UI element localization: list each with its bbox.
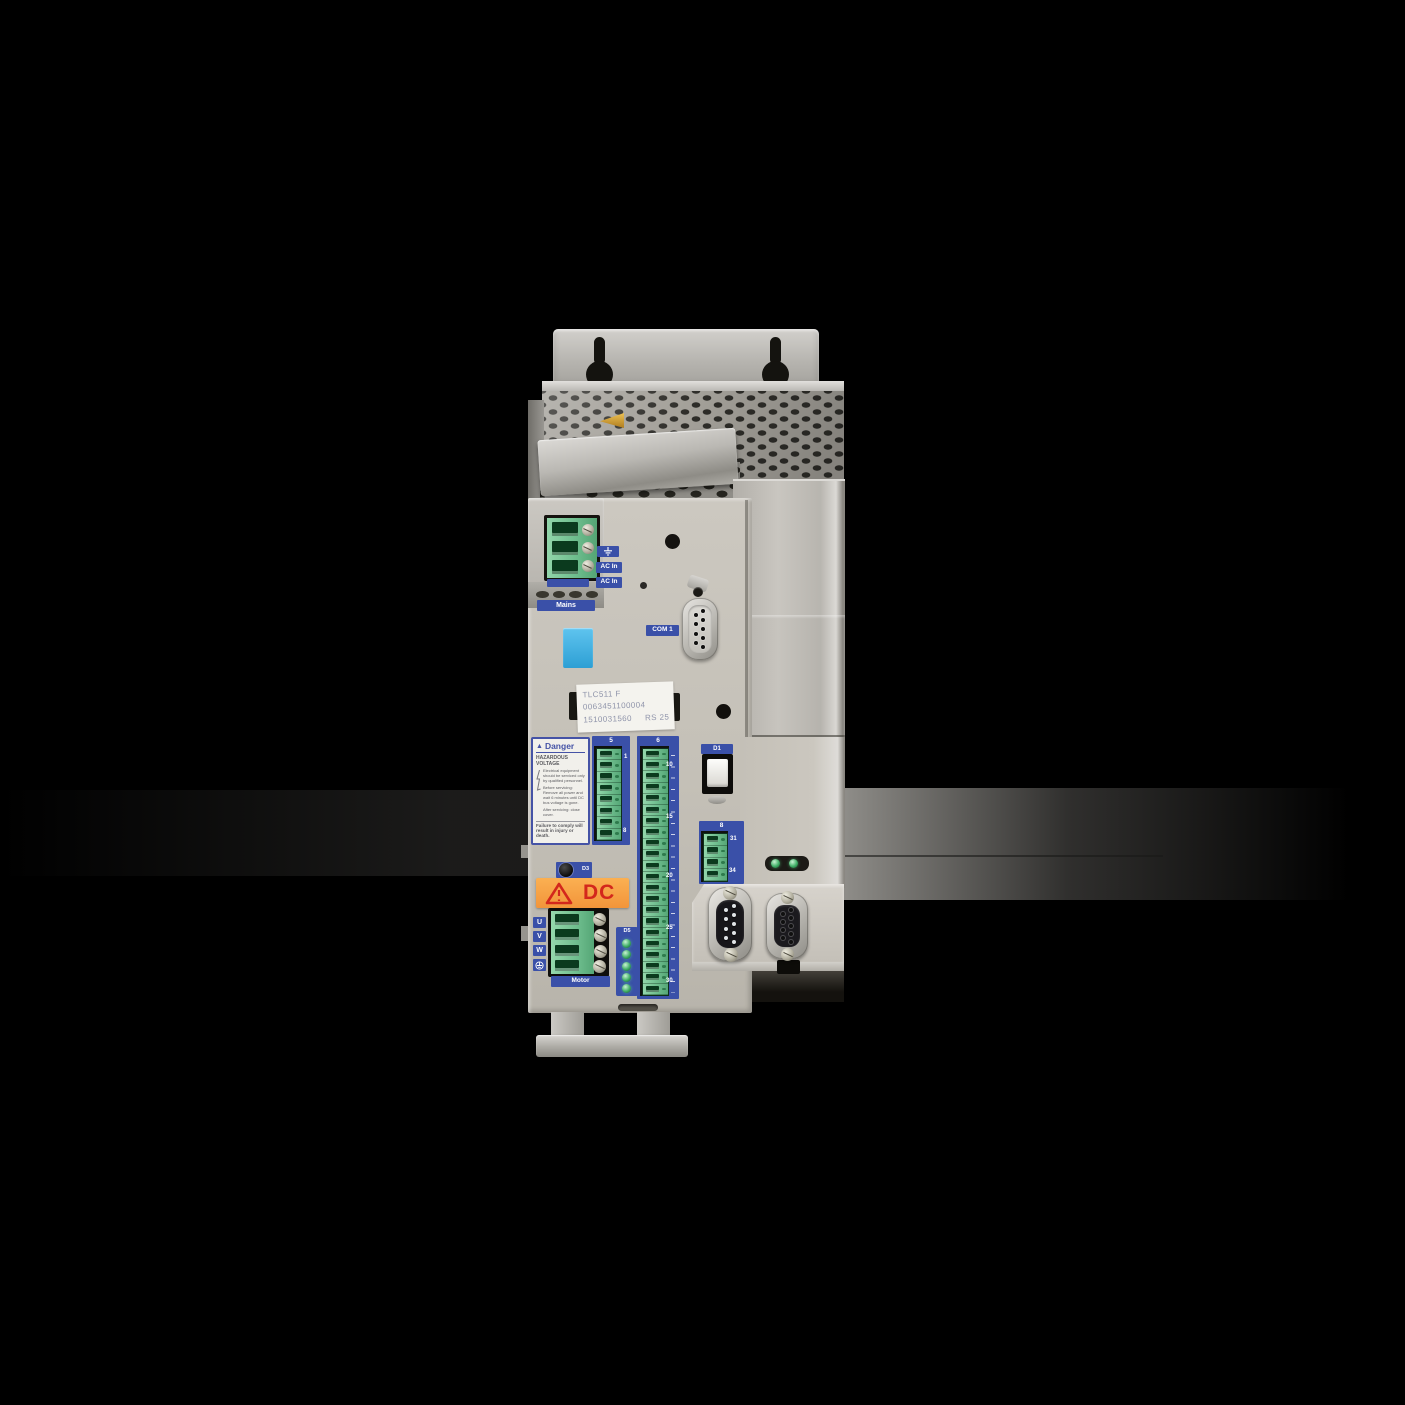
db9-hole (694, 613, 698, 617)
db9-pin (732, 904, 736, 908)
connector-8-header: 8 (720, 823, 724, 830)
db9-hole (694, 641, 698, 645)
db9-hole (694, 622, 698, 626)
connector-6-pins (642, 748, 669, 996)
db9-female-screw-top (781, 891, 794, 904)
vent-slot (553, 591, 566, 598)
product-photo-servo-drive: Mains AC In AC In COM 1 TLC511 (0, 0, 1405, 1405)
db9-male-shell (716, 900, 744, 948)
motor-screw-3 (594, 945, 607, 958)
connector-5-pin8-marker: 8 (623, 828, 626, 834)
connector-5-pins (596, 748, 622, 841)
d1-switch-base (708, 796, 726, 804)
com1-holes-col-a (701, 609, 705, 649)
db9-pin (724, 927, 728, 931)
earth-ground-icon (603, 547, 613, 556)
status-led-slot (765, 856, 809, 871)
db9-hole (701, 645, 705, 649)
db9-female-holes-col-a (789, 908, 793, 944)
db9-female-holes-col-b (781, 912, 785, 940)
db9-female-port (766, 893, 808, 959)
terminal-pin (643, 928, 668, 939)
dc-sticker-text: DC (583, 881, 615, 905)
motor-screw-2 (594, 929, 607, 942)
status-led (789, 859, 798, 868)
ac-in-top-text: AC In (601, 564, 618, 571)
phase-label-w: W (533, 945, 546, 956)
ac-terminal-openings (552, 522, 578, 574)
connector-6-marker-30: 30 (666, 978, 673, 984)
terminal-pin (597, 795, 621, 806)
warning-triangle-icon (545, 882, 573, 905)
terminal-opening (555, 945, 579, 956)
mains-label: Mains (537, 600, 595, 611)
ground-label (597, 546, 619, 557)
com1-label-text: COM 1 (652, 627, 673, 634)
com1-label: COM 1 (646, 625, 679, 636)
danger-body-line: Before servicing: Remove all power and w… (543, 785, 585, 805)
db9-hole (701, 627, 705, 631)
db9-hole (789, 916, 793, 920)
terminal-pin (643, 760, 668, 771)
d5-led (622, 962, 631, 971)
phase-w-text: W (536, 947, 543, 954)
mounting-bracket-bottom (536, 1035, 688, 1057)
terminal-pin (643, 939, 668, 950)
terminal-pin (597, 783, 621, 794)
terminal-pin (643, 894, 668, 905)
db9-hole (789, 940, 793, 944)
ac-in-label-top: AC In (596, 562, 622, 573)
com1-db9-port (682, 598, 718, 660)
terminal-pin (643, 816, 668, 827)
danger-body-line: Electrical equipment should be serviced … (543, 768, 585, 783)
phase-label-u: U (533, 917, 546, 928)
panel-right-seam (745, 500, 748, 737)
terminal-pin (704, 869, 727, 881)
connector-8-pin31-marker: 31 (730, 836, 737, 842)
motor-label: Motor (551, 976, 610, 987)
db9-hole (789, 932, 793, 936)
db9-male-screw-top (723, 886, 737, 900)
terminal-opening (555, 914, 579, 925)
connector-8-pin34-marker: 34 (729, 868, 736, 874)
db9-female-screw-bottom (781, 948, 794, 961)
motor-screw-4 (593, 960, 606, 973)
d1-label: D1 (701, 744, 733, 754)
db9-pin (724, 908, 728, 912)
background-band-left (0, 790, 530, 876)
com1-screw-hole (693, 587, 703, 597)
d5-label-text: D5 (623, 929, 630, 935)
terminal-pin (597, 760, 621, 771)
terminal-opening (552, 541, 578, 555)
panel-hole-mid (716, 704, 731, 719)
terminal-pin (643, 749, 668, 760)
terminal-pin (704, 846, 727, 858)
ac-in-bottom-text: AC In (601, 579, 618, 586)
product-label: TLC511 F 0063451100004 1510031560 RS 25 (576, 681, 675, 732)
db9-male-pins-col-a (732, 904, 736, 944)
earth-ground-icon (535, 961, 544, 970)
terminal-opening (555, 960, 579, 971)
terminal-pin (643, 827, 668, 838)
d5-led (622, 939, 631, 948)
db9-male-pins-col-b (724, 908, 728, 940)
phase-label-ground (533, 959, 546, 971)
db9-hole (789, 924, 793, 928)
d1-label-text: D1 (713, 746, 721, 752)
db9-male-port (708, 887, 752, 961)
dc-warning-sticker: DC (536, 878, 629, 908)
plate-black-tab (777, 960, 800, 974)
terminal-pin (643, 783, 668, 794)
background-band-right (843, 788, 1405, 900)
terminal-pin (597, 817, 621, 828)
ac-terminal-block (547, 518, 597, 578)
electric-shock-icon (536, 770, 541, 792)
panel-bottom-slot (618, 1004, 658, 1011)
connector-6-marker-15: 15 (666, 814, 673, 820)
db9-hole (694, 632, 698, 636)
ac-screw-1 (582, 524, 594, 536)
terminal-pin (704, 858, 727, 870)
ac-screw-3 (582, 560, 594, 572)
danger-hazard: HAZARDOUS VOLTAGE (536, 755, 570, 767)
cyan-button (563, 628, 593, 668)
db9-pin (724, 936, 728, 940)
d5-led (622, 973, 631, 982)
db9-hole (701, 636, 705, 640)
ac-screw-2 (582, 542, 594, 554)
d1-switch-slider (707, 759, 728, 787)
terminal-pin (643, 906, 668, 917)
motor-label-text: Motor (571, 978, 589, 985)
terminal-pin (597, 749, 621, 760)
db9-male-screw-bottom (724, 948, 738, 962)
motor-terminal-block (551, 911, 594, 974)
connector-8-pins (703, 833, 728, 882)
vent-slot (586, 591, 599, 598)
warning-triangle-icon: ▲ (536, 743, 543, 750)
danger-body-line: After servicing: close cover. (543, 807, 585, 817)
terminal-pin (643, 861, 668, 872)
connector-5-header: 5 (609, 738, 613, 745)
terminal-pin (643, 872, 668, 883)
db9-hole (781, 920, 785, 924)
terminal-opening (555, 929, 579, 940)
phase-v-text: V (537, 933, 542, 940)
terminal-pin (643, 805, 668, 816)
motor-terminal-openings (555, 914, 579, 971)
terminal-pin (643, 771, 668, 782)
connector-6-marker-10: 10 (666, 762, 673, 768)
terminal-pin (643, 794, 668, 805)
terminal-pin (643, 962, 668, 973)
com1-holes-col-b (694, 613, 698, 645)
d5-led (622, 950, 631, 959)
vent-slot (569, 591, 582, 598)
motor-screw-1 (593, 913, 606, 926)
db9-hole (781, 912, 785, 916)
terminal-pin (643, 850, 668, 861)
connector-5-pin1-marker: 1 (624, 754, 627, 760)
phase-label-v: V (533, 931, 546, 942)
d1-switch-frame (702, 754, 733, 794)
terminal-pin (643, 917, 668, 928)
terminal-pin (643, 973, 668, 984)
db9-pin (732, 931, 736, 935)
status-led (771, 859, 780, 868)
db9-hole (781, 928, 785, 932)
danger-label: ▲ Danger HAZARDOUS VOLTAGE Electrical eq… (531, 737, 590, 845)
panel-hole-top (665, 534, 680, 549)
mains-label-text: Mains (556, 602, 576, 609)
terminal-pin (704, 834, 727, 846)
danger-footer: Failure to comply will result in injury … (536, 821, 585, 838)
terminal-opening (552, 560, 578, 574)
db9-hole (781, 936, 785, 940)
d5-led (622, 984, 631, 993)
phase-u-text: U (537, 919, 542, 926)
db9-hole (701, 609, 705, 613)
background-band-seam (843, 855, 1163, 857)
terminal-pin (643, 950, 668, 961)
terminal-pin (597, 772, 621, 783)
db9-pin (732, 940, 736, 944)
danger-title: Danger (545, 741, 574, 751)
db9-hole (701, 618, 705, 622)
ac-in-label-bottom: AC In (596, 577, 622, 588)
com1-db9-recess (688, 605, 712, 653)
ac-terminal-blue-strip (547, 579, 589, 587)
db9-female-shell (774, 905, 800, 947)
d3-button (559, 863, 573, 877)
product-label-line3: 1510031560 RS 25 (583, 711, 668, 726)
db9-hole (789, 908, 793, 912)
db9-pin (732, 913, 736, 917)
connector-6-header: 6 (656, 738, 660, 745)
connector-6-marker-20: 20 (666, 873, 673, 879)
terminal-pin (643, 883, 668, 894)
terminal-pin (643, 984, 668, 995)
terminal-pin (597, 806, 621, 817)
terminal-pin (643, 839, 668, 850)
danger-body: Electrical equipment should be serviced … (543, 768, 585, 819)
db9-pin (724, 917, 728, 921)
db9-pin (732, 922, 736, 926)
terminal-opening (552, 522, 578, 536)
vent-slot (536, 591, 549, 598)
terminal-pin (597, 829, 621, 840)
connector-6-marker-25: 25 (666, 925, 673, 931)
module-vents (536, 587, 598, 601)
d5-leds (622, 939, 632, 993)
d3-label-text: D3 (582, 867, 589, 873)
panel-dot-small (640, 582, 647, 589)
